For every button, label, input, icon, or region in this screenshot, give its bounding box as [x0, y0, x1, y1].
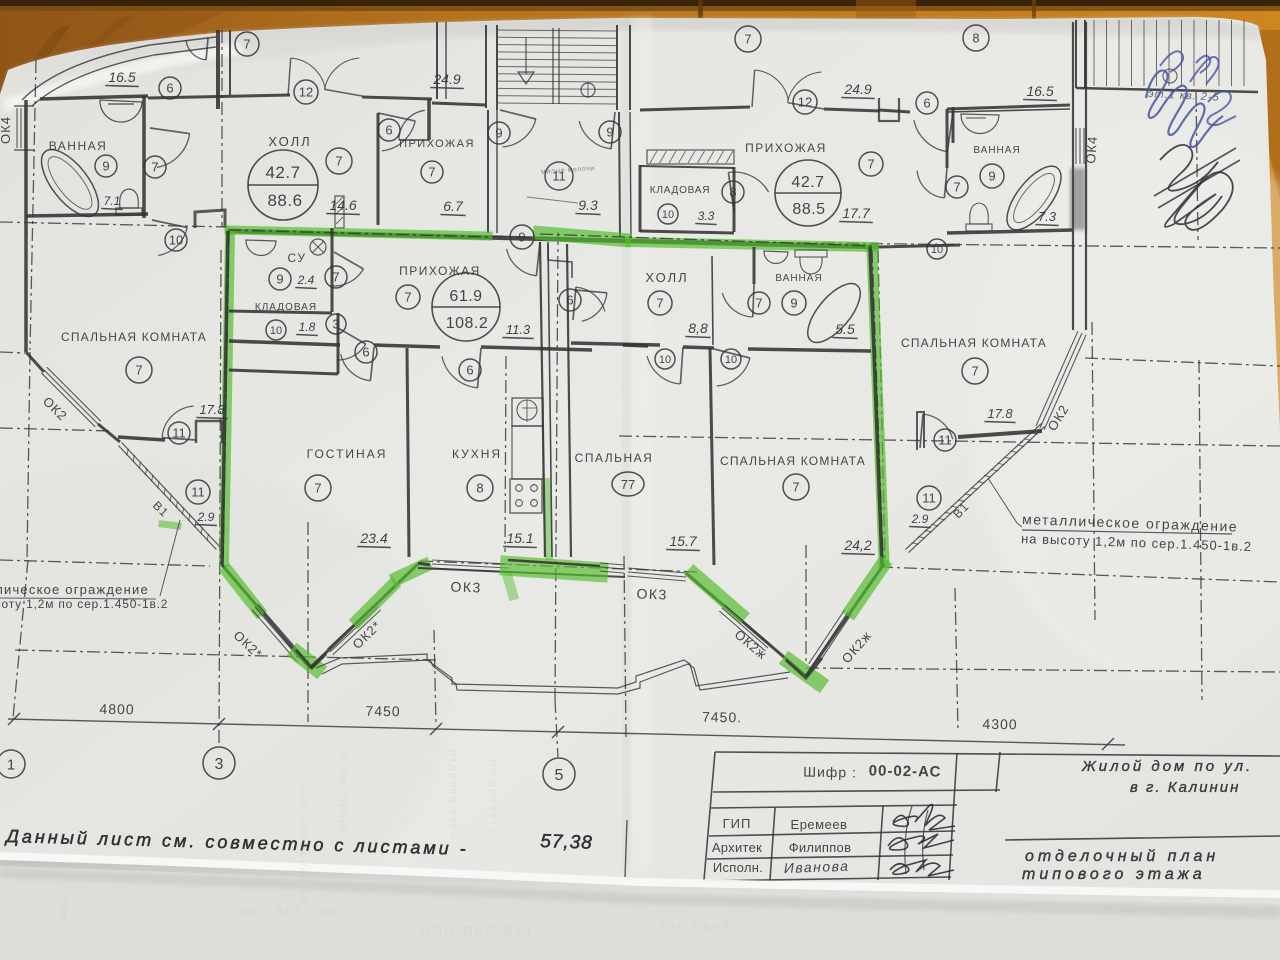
svg-text:СПАЛЬНАЯ КОМНАТА: СПАЛЬНАЯ КОМНАТА — [61, 330, 207, 344]
svg-text:типового этажа: типового этажа — [1022, 866, 1206, 883]
svg-text:ОК4: ОК4 — [1083, 135, 1100, 164]
svg-text:отделка стен: отделка стен — [447, 750, 459, 840]
svg-text:10: 10 — [725, 354, 737, 366]
svg-text:9: 9 — [276, 272, 283, 287]
svg-text:3: 3 — [215, 756, 224, 773]
svg-text:Филиппов: Филиппов — [789, 840, 852, 855]
svg-text:77: 77 — [621, 477, 635, 492]
svg-text:108.2: 108.2 — [446, 315, 489, 332]
svg-text:7: 7 — [335, 154, 342, 169]
svg-text:15.7: 15.7 — [669, 533, 697, 549]
svg-text:7: 7 — [755, 296, 762, 311]
svg-text:11: 11 — [922, 491, 936, 506]
svg-text:ПРИХОЖАЯ: ПРИХОЖАЯ — [745, 141, 827, 155]
svg-text:2.9: 2.9 — [911, 512, 929, 526]
svg-text:СПАЛЬНАЯ КОМНАТА: СПАЛЬНАЯ КОМНАТА — [720, 454, 866, 468]
svg-text:Газоснабжение по: Газоснабжение по — [297, 780, 309, 905]
svg-text:отделочный план: отделочный план — [1025, 848, 1219, 865]
svg-text:6: 6 — [466, 363, 473, 378]
svg-text:42.7: 42.7 — [265, 163, 300, 182]
svg-text:24,2: 24,2 — [843, 537, 871, 553]
svg-text:9: 9 — [790, 296, 797, 311]
svg-text:6: 6 — [166, 81, 173, 96]
svg-text:6: 6 — [385, 123, 392, 138]
svg-text:11.3: 11.3 — [506, 322, 531, 337]
svg-text:57,38: 57,38 — [540, 831, 593, 854]
svg-text:2.4: 2.4 — [297, 273, 315, 287]
svg-text:ГИП: ГИП — [723, 816, 752, 831]
svg-text:7: 7 — [792, 480, 799, 495]
svg-text:Иванова: Иванова — [784, 858, 850, 876]
svg-text:по проекту: по проекту — [487, 760, 499, 835]
svg-text:10: 10 — [662, 209, 674, 221]
svg-text:тип овой: тип овой — [660, 919, 732, 933]
svg-text:11: 11 — [172, 426, 186, 441]
svg-text:9: 9 — [518, 230, 525, 245]
svg-text:1: 1 — [7, 756, 15, 773]
svg-text:15.1: 15.1 — [506, 530, 533, 546]
svg-text:6.7: 6.7 — [443, 198, 464, 214]
svg-text:88.6: 88.6 — [267, 191, 302, 210]
svg-text:Шифр :: Шифр : — [803, 764, 857, 781]
svg-text:ГОСТИНАЯ: ГОСТИНАЯ — [307, 447, 388, 461]
svg-text:9.3: 9.3 — [578, 197, 598, 213]
svg-text:14.6: 14.6 — [329, 197, 356, 213]
svg-text:ПРИХОЖАЯ: ПРИХОЖАЯ — [399, 138, 475, 150]
svg-text:7450: 7450 — [365, 703, 400, 720]
svg-text:сетям города: сетям города — [337, 745, 349, 836]
svg-text:9: 9 — [606, 125, 613, 140]
svg-text:11: 11 — [191, 485, 205, 500]
svg-text:КУХНЯ: КУХНЯ — [452, 447, 502, 461]
svg-text:9: 9 — [102, 159, 109, 174]
svg-text:10: 10 — [169, 233, 183, 248]
svg-text:7: 7 — [971, 364, 978, 379]
svg-text:7: 7 — [953, 180, 960, 195]
svg-text:КЛАДОВАЯ: КЛАДОВАЯ — [255, 302, 317, 313]
svg-text:7450.: 7450. — [702, 709, 742, 726]
svg-text:ХОЛЛ: ХОЛЛ — [645, 270, 688, 285]
svg-text:10: 10 — [931, 244, 943, 256]
svg-text:7: 7 — [744, 32, 751, 47]
svg-text:7: 7 — [404, 290, 411, 305]
svg-text:4800: 4800 — [99, 701, 134, 718]
svg-text:высоту 1,2м по сер.1.450-1в.2: высоту 1,2м по сер.1.450-1в.2 — [0, 597, 168, 611]
svg-text:Архитек: Архитек — [712, 840, 762, 855]
svg-text:7: 7 — [314, 481, 321, 496]
svg-text:8: 8 — [972, 31, 979, 46]
svg-text:блок: блок — [57, 900, 70, 922]
svg-text:12: 12 — [299, 85, 313, 100]
svg-text:СПАЛЬНАЯ КОМНАТА: СПАЛЬНАЯ КОМНАТА — [901, 336, 1047, 350]
svg-text:17.8: 17.8 — [987, 406, 1013, 421]
svg-text:СУ: СУ — [288, 251, 307, 265]
svg-text:ОК4: ОК4 — [0, 116, 13, 144]
svg-text:5.5: 5.5 — [835, 321, 855, 337]
svg-text:7: 7 — [867, 157, 874, 172]
svg-text:7: 7 — [656, 296, 663, 311]
svg-text:в г. Калинин: в г. Калинин — [1130, 779, 1240, 796]
svg-text:2.9: 2.9 — [197, 510, 215, 524]
svg-text:7: 7 — [135, 363, 142, 378]
svg-text:4300: 4300 — [982, 716, 1017, 733]
svg-text:Жилой дом по ул.: Жилой дом по ул. — [1081, 758, 1253, 775]
svg-text:ВАННАЯ: ВАННАЯ — [973, 145, 1020, 156]
svg-text:ООО ПРО ЕКТ: ООО ПРО ЕКТ — [420, 924, 536, 938]
svg-text:88.5: 88.5 — [792, 201, 825, 218]
svg-text:00-02-АС: 00-02-АС — [869, 762, 942, 780]
svg-text:7.3: 7.3 — [1038, 209, 1057, 224]
svg-text:ОК3: ОК3 — [636, 585, 668, 602]
svg-text:9: 9 — [988, 169, 995, 184]
svg-text:КЛАДОВАЯ: КЛАДОВАЯ — [650, 185, 711, 196]
svg-text:аллическое ограждение: аллическое ограждение — [0, 582, 149, 597]
svg-text:Еремеев: Еремеев — [791, 817, 848, 832]
svg-text:7.1: 7.1 — [104, 194, 121, 208]
svg-text:ХОЛЛ: ХОЛЛ — [268, 134, 311, 149]
svg-text:ооо апх ннн: ооо апх ннн — [240, 904, 339, 918]
svg-text:61.9: 61.9 — [449, 288, 482, 305]
svg-text:ОК3: ОК3 — [450, 578, 482, 595]
svg-text:3.3: 3.3 — [698, 209, 715, 223]
svg-text:Исполн.: Исполн. — [713, 860, 763, 875]
svg-text:6: 6 — [362, 345, 369, 360]
svg-text:42.7: 42.7 — [791, 174, 824, 191]
svg-text:10: 10 — [270, 325, 282, 337]
svg-text:16.5: 16.5 — [108, 69, 135, 85]
svg-text:1.8: 1.8 — [299, 320, 316, 334]
svg-text:8: 8 — [476, 481, 483, 496]
svg-text:17.7: 17.7 — [842, 205, 870, 221]
svg-text:СПАЛЬНАЯ: СПАЛЬНАЯ — [575, 451, 654, 465]
svg-text:3: 3 — [332, 317, 339, 332]
svg-text:7: 7 — [332, 270, 339, 285]
svg-text:12: 12 — [798, 95, 812, 110]
svg-text:ПРИХОЖАЯ: ПРИХОЖАЯ — [399, 264, 481, 278]
svg-text:24.9: 24.9 — [432, 71, 460, 87]
svg-text:7: 7 — [243, 37, 250, 52]
svg-text:10: 10 — [659, 354, 671, 366]
svg-text:6: 6 — [923, 96, 930, 111]
svg-text:24.9: 24.9 — [843, 81, 871, 97]
svg-text:5: 5 — [555, 767, 564, 784]
svg-text:23.4: 23.4 — [359, 530, 387, 546]
svg-text:7: 7 — [428, 165, 435, 180]
svg-text:16.5: 16.5 — [1026, 83, 1053, 99]
svg-text:11: 11 — [938, 433, 952, 448]
svg-text:8,8: 8,8 — [688, 320, 708, 336]
svg-text:17.8: 17.8 — [199, 402, 225, 417]
svg-text:ВАННАЯ: ВАННАЯ — [775, 273, 822, 284]
svg-text:ВАННАЯ: ВАННАЯ — [49, 139, 108, 153]
